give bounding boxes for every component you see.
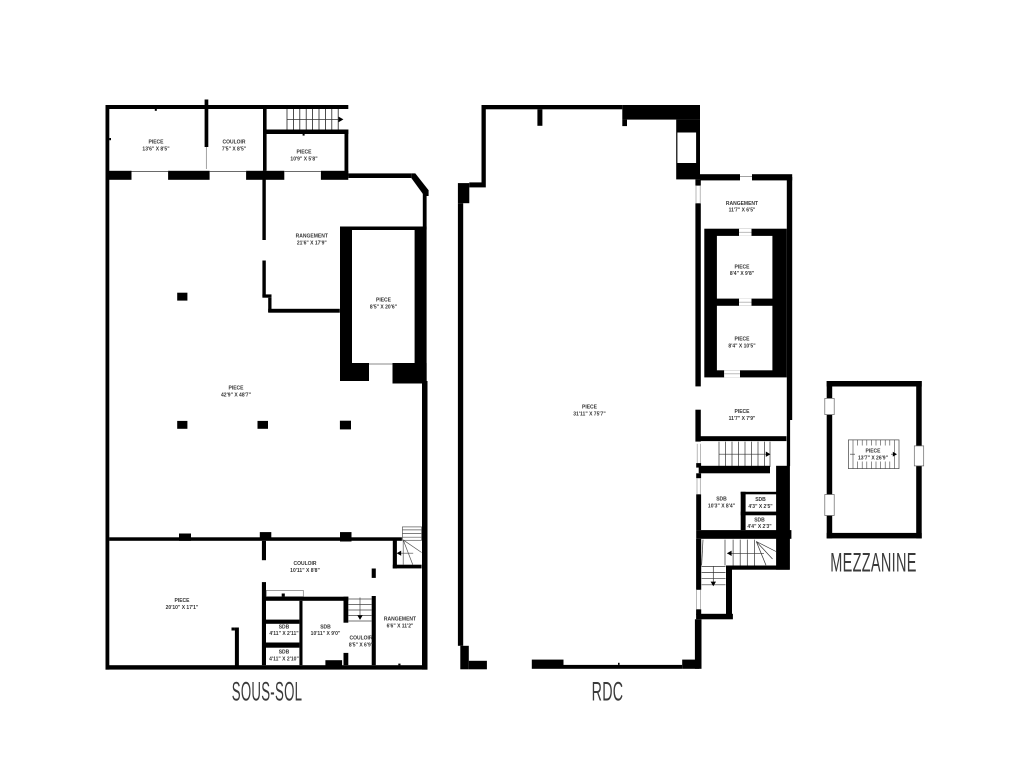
svg-text:4'4" X 2'3": 4'4" X 2'3" [747,524,772,530]
svg-text:RDC: RDC [592,677,624,707]
svg-text:42'9" X 48'7": 42'9" X 48'7" [221,393,252,399]
svg-text:PIECE: PIECE [376,298,392,304]
svg-text:13'7" X 26'9": 13'7" X 26'9" [858,456,889,462]
svg-text:SDB: SDB [755,497,766,503]
svg-text:PIECE: PIECE [734,409,750,415]
svg-text:RANGEMENT: RANGEMENT [296,234,328,240]
svg-text:11'7" X 7'9": 11'7" X 7'9" [729,416,756,422]
svg-text:PIECE: PIECE [174,598,190,604]
svg-text:RANGEMENT: RANGEMENT [726,201,758,207]
svg-text:PIECE: PIECE [865,449,881,455]
svg-text:PIECE: PIECE [734,264,750,270]
svg-text:20'10" X 17'1": 20'10" X 17'1" [166,605,199,611]
svg-text:SDB: SDB [279,650,290,656]
svg-text:PIECE: PIECE [148,140,164,146]
svg-text:PIECE: PIECE [296,149,312,155]
svg-text:7'5" X 8'5": 7'5" X 8'5" [222,147,247,153]
svg-text:PIECE: PIECE [582,405,598,411]
svg-text:31'11" X 75'7": 31'11" X 75'7" [573,412,606,418]
svg-text:PIECE: PIECE [734,337,750,343]
svg-text:COULOIR: COULOIR [293,561,316,567]
svg-text:SDB: SDB [716,496,727,502]
svg-text:4'11" X 2'10": 4'11" X 2'10" [269,657,299,663]
svg-text:11'7" X 6'5": 11'7" X 6'5" [729,208,756,214]
svg-text:4'3" X 2'5": 4'3" X 2'5" [748,504,773,510]
svg-text:13'6" X 8'5": 13'6" X 8'5" [142,147,170,153]
svg-text:RANGEMENT: RANGEMENT [384,616,416,622]
svg-text:SDB: SDB [279,624,290,630]
svg-text:MEZZANINE: MEZZANINE [830,548,916,578]
svg-text:8'5" X 6'9": 8'5" X 6'9" [349,643,374,649]
svg-text:10'11" X 8'8": 10'11" X 8'8" [290,568,320,574]
svg-text:8'5" X 20'6": 8'5" X 20'6" [370,305,398,311]
svg-text:SDB: SDB [754,517,765,523]
svg-text:COULOIR: COULOIR [349,636,372,642]
svg-text:4'11" X 2'11": 4'11" X 2'11" [269,631,299,637]
svg-text:COULOIR: COULOIR [222,140,245,146]
svg-text:10'11" X 9'0": 10'11" X 9'0" [311,631,341,637]
svg-text:8'4" X 10'5": 8'4" X 10'5" [728,344,756,350]
svg-text:SOUS-SOL: SOUS-SOL [232,678,303,707]
svg-text:SDB: SDB [320,624,331,630]
svg-text:6'6" X 11'2": 6'6" X 11'2" [387,623,414,629]
svg-text:PIECE: PIECE [228,386,244,392]
svg-text:21'6" X 17'9": 21'6" X 17'9" [297,241,328,247]
svg-text:10'3" X 8'4": 10'3" X 8'4" [708,503,736,509]
svg-text:8'4" X 9'8": 8'4" X 9'8" [730,271,755,277]
svg-text:10'9" X 5'8": 10'9" X 5'8" [290,156,318,162]
